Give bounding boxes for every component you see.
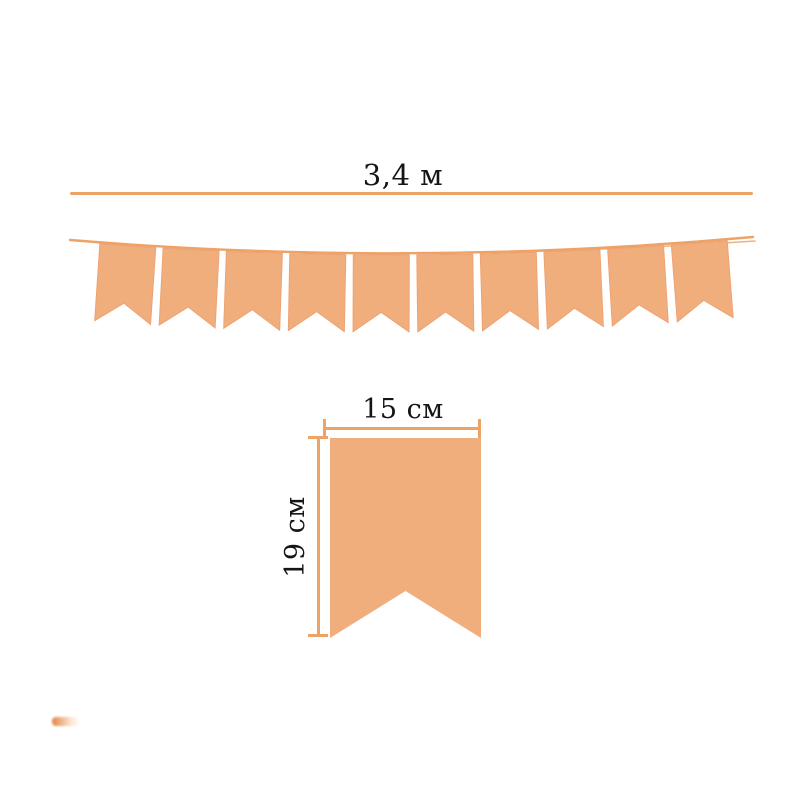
banner-string-double — [480, 241, 755, 253]
flag-width-label: 15 см — [325, 396, 481, 423]
diagram-canvas: 3,4 м 15 см 19 см — [0, 0, 800, 800]
flag-width-dim-line — [325, 427, 480, 430]
total-length-line — [70, 192, 753, 195]
total-length-label: 3,4 м — [303, 161, 503, 190]
flag-height-dim-line — [317, 438, 320, 637]
banner-string — [70, 237, 753, 253]
pennant-flag — [671, 241, 733, 322]
pennant-flag — [159, 248, 219, 328]
pennant-flag — [417, 254, 474, 332]
pennant-flag — [95, 244, 156, 325]
print-smudge-artifact — [52, 717, 80, 726]
pennant-flag — [353, 255, 409, 332]
pennant-flag — [608, 246, 669, 326]
flag-height-label: 19 см — [282, 477, 312, 597]
flag-width-tick-right — [478, 419, 481, 438]
flag-height-tick-bottom — [308, 634, 328, 637]
pennant-flag — [480, 252, 538, 331]
flag-detail-shape — [330, 438, 481, 638]
pennant-flag — [288, 254, 345, 332]
flag-height-tick-top — [308, 436, 328, 439]
pennant-flag — [544, 250, 603, 329]
pennant-flag — [224, 251, 283, 330]
